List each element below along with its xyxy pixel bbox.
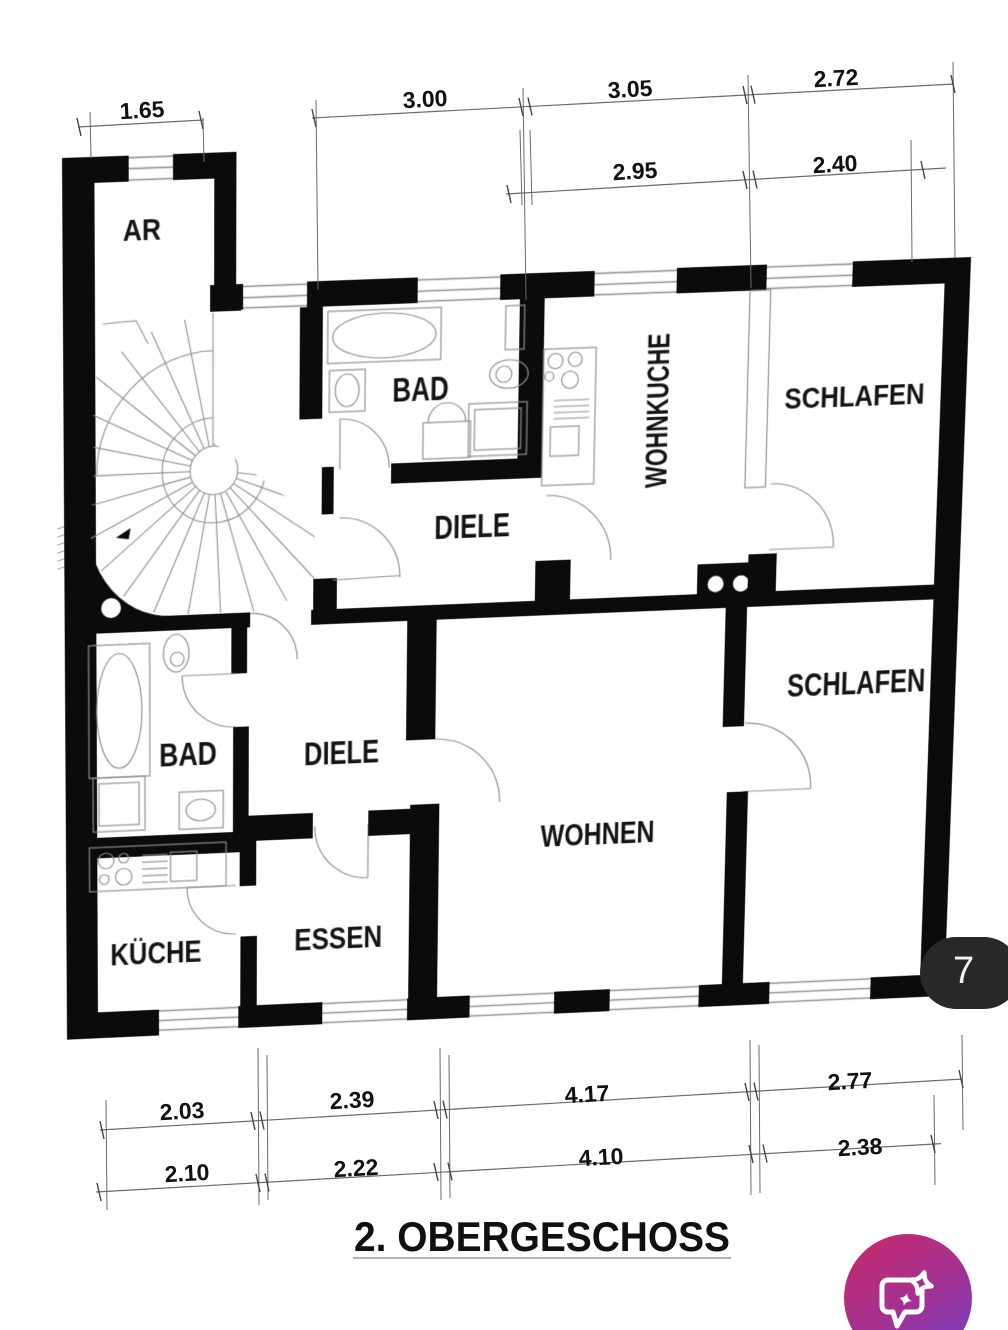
- svg-text:2.03: 2.03: [159, 1097, 205, 1125]
- svg-text:2.40: 2.40: [812, 150, 858, 178]
- svg-text:3.00: 3.00: [402, 85, 448, 113]
- svg-text:4.17: 4.17: [564, 1080, 610, 1108]
- svg-text:2.38: 2.38: [837, 1133, 883, 1161]
- svg-text:1.65: 1.65: [119, 96, 165, 124]
- svg-text:2.22: 2.22: [333, 1154, 379, 1182]
- svg-text:2. OBERGESCHOSS: 2. OBERGESCHOSS: [354, 1213, 730, 1260]
- svg-text:2.10: 2.10: [164, 1159, 210, 1187]
- svg-text:2.77: 2.77: [827, 1067, 873, 1095]
- svg-text:3.05: 3.05: [607, 75, 653, 103]
- svg-text:2.95: 2.95: [612, 157, 658, 185]
- svg-text:4.10: 4.10: [578, 1143, 624, 1171]
- svg-text:2.39: 2.39: [329, 1086, 375, 1114]
- svg-text:2.72: 2.72: [813, 64, 859, 92]
